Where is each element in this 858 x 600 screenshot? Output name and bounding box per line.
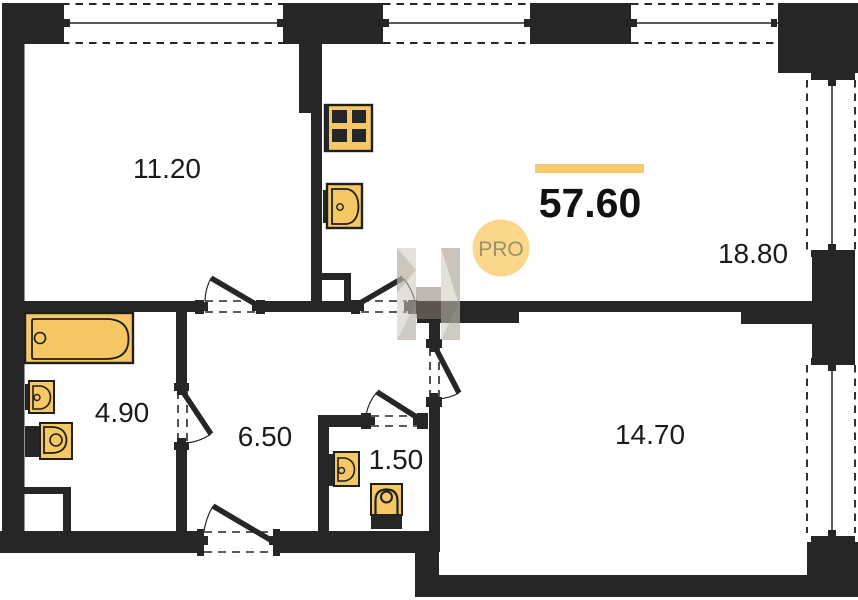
svg-text:11.20: 11.20 [133,153,201,184]
svg-text:14.70: 14.70 [615,419,685,450]
svg-text:57.60: 57.60 [539,180,642,226]
svg-text:PRO: PRO [478,238,524,261]
svg-text:18.80: 18.80 [718,238,788,269]
svg-text:1.50: 1.50 [369,444,424,475]
svg-text:4.90: 4.90 [95,397,150,428]
svg-text:6.50: 6.50 [238,421,293,452]
